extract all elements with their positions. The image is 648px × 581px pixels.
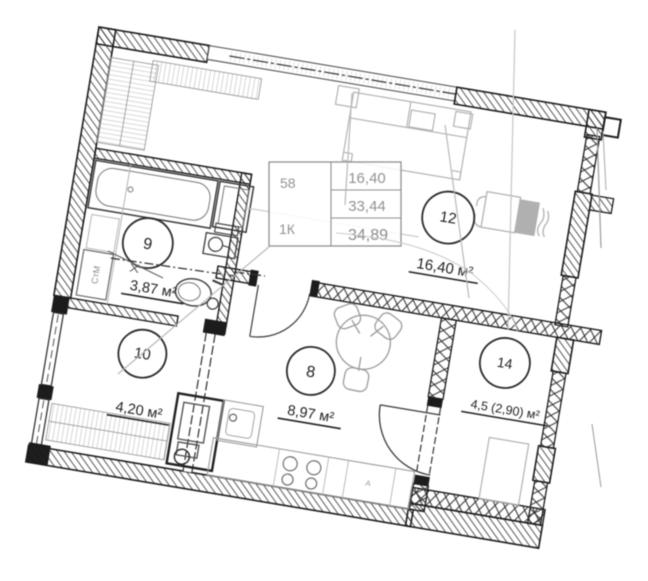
svg-text:3,87 м²: 3,87 м² [129,278,178,302]
svg-text:14: 14 [496,354,514,372]
svg-text:33,44: 33,44 [348,198,386,215]
svg-text:12: 12 [438,208,457,228]
svg-text:58: 58 [280,175,296,191]
svg-text:A: A [365,479,372,489]
svg-text:1К: 1К [279,221,296,237]
svg-text:СтМ: СтМ [89,265,102,285]
svg-text:8,97 м²: 8,97 м² [286,403,335,427]
svg-text:16,40: 16,40 [348,170,386,187]
svg-text:34,89: 34,89 [348,227,388,244]
